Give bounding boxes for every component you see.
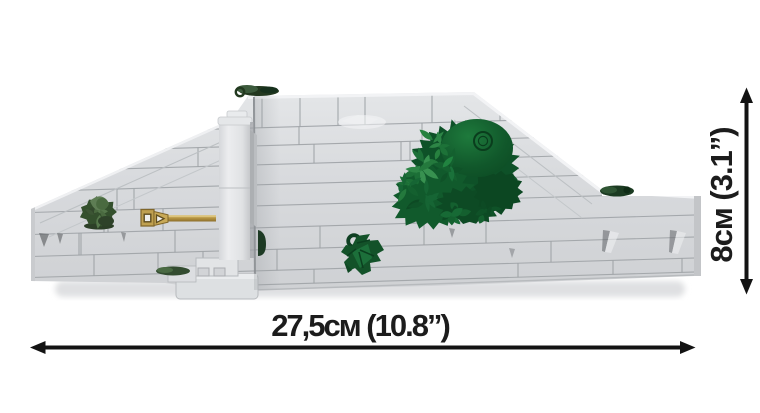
svg-text:8см (3.1”): 8см (3.1”) — [704, 127, 739, 262]
svg-text:27,5см (10.8”): 27,5см (10.8”) — [271, 308, 449, 343]
